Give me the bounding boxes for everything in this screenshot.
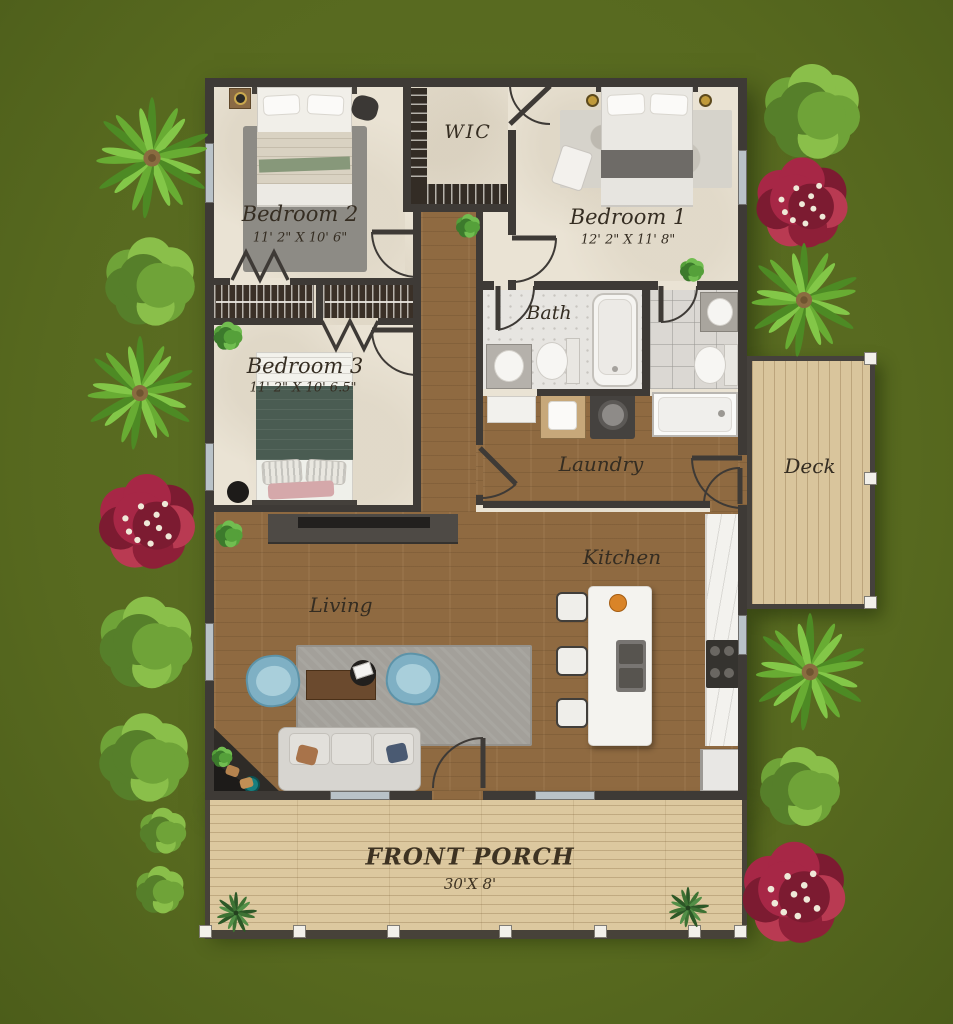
bedside-lamp bbox=[699, 94, 712, 107]
toilet-bowl bbox=[694, 346, 726, 384]
bush bbox=[94, 226, 206, 338]
closet-bedroom3 bbox=[323, 285, 420, 318]
wall bbox=[403, 78, 411, 212]
bath2-sink bbox=[707, 298, 733, 326]
sofa-cushion bbox=[331, 733, 372, 765]
burner bbox=[710, 646, 720, 656]
bed-pillow bbox=[307, 94, 345, 116]
toilet-tank bbox=[724, 344, 738, 386]
wall bbox=[534, 281, 658, 290]
wall bbox=[483, 791, 747, 800]
cooktop bbox=[706, 640, 739, 688]
door-gap-floor bbox=[432, 791, 483, 800]
porch-post bbox=[293, 925, 306, 938]
deck-label: Deck bbox=[784, 454, 835, 478]
bush bbox=[88, 702, 200, 814]
deck bbox=[747, 356, 875, 609]
wall bbox=[508, 280, 516, 290]
palm-tree bbox=[742, 238, 866, 362]
floor-plan-scene: Bedroom 2 11' 2" X 10' 6" Bedroom 1 12' … bbox=[0, 0, 953, 1024]
wall bbox=[205, 791, 432, 800]
wall bbox=[290, 278, 420, 285]
sink-basin bbox=[619, 644, 643, 664]
bed-pillow bbox=[263, 94, 301, 116]
bedroom1-bed-foot bbox=[601, 178, 693, 207]
burner bbox=[710, 668, 720, 678]
window bbox=[535, 791, 595, 800]
bathtub-basin bbox=[598, 299, 632, 375]
palm-tree bbox=[86, 92, 218, 224]
kitchen-counter bbox=[705, 514, 740, 746]
wic-label: WIC bbox=[444, 121, 492, 143]
window bbox=[330, 791, 390, 800]
wall bbox=[205, 505, 420, 512]
refrigerator bbox=[700, 749, 740, 791]
potted-plant bbox=[677, 255, 707, 285]
wall bbox=[476, 212, 483, 445]
island-sink bbox=[616, 640, 646, 692]
porch-post bbox=[199, 925, 212, 938]
window bbox=[205, 623, 214, 681]
bedroom1-dims: 12' 2" X 11' 8" bbox=[581, 233, 676, 248]
wall bbox=[508, 130, 516, 235]
laundry-label: Laundry bbox=[559, 452, 644, 476]
bedroom1-blanket-band bbox=[601, 150, 693, 178]
bush bbox=[130, 860, 190, 920]
potted-plant bbox=[453, 211, 483, 241]
potted-plant bbox=[209, 744, 235, 770]
wall bbox=[483, 501, 710, 508]
wall bbox=[537, 389, 642, 396]
porch-plant bbox=[212, 889, 260, 937]
bedroom1-label: Bedroom 1 bbox=[570, 205, 687, 229]
bar-stool bbox=[556, 592, 588, 622]
bedside-lamp bbox=[586, 94, 599, 107]
tv-screen bbox=[298, 517, 430, 528]
door-gap-floor bbox=[738, 455, 747, 505]
front-porch-dims: 30'X 8' bbox=[444, 875, 496, 893]
bar-stool bbox=[556, 646, 588, 676]
potted-plant bbox=[210, 318, 246, 354]
toilet-tank bbox=[566, 338, 580, 384]
porch-post bbox=[499, 925, 512, 938]
bath-sink bbox=[494, 350, 524, 382]
wic-shelving-bottom bbox=[427, 184, 507, 204]
bush bbox=[88, 585, 204, 701]
sofa bbox=[278, 727, 421, 791]
bar-stool bbox=[556, 698, 588, 728]
bedroom3-dims: 11' 2" X 10' 6.5" bbox=[250, 381, 357, 396]
sink-basin bbox=[619, 668, 643, 688]
tub-drain bbox=[612, 366, 618, 372]
wall bbox=[642, 290, 650, 396]
bush bbox=[750, 737, 850, 837]
flower-bush bbox=[87, 462, 207, 582]
utility-sink bbox=[548, 401, 577, 430]
bed-pillow bbox=[649, 93, 688, 116]
bedroom3-blanket bbox=[256, 386, 353, 460]
wall bbox=[483, 281, 494, 290]
toilet-bowl bbox=[536, 342, 568, 380]
burner bbox=[724, 668, 734, 678]
flower-bush bbox=[730, 829, 858, 957]
laundry-counter bbox=[487, 396, 536, 423]
wall bbox=[476, 495, 483, 505]
door-gap-floor bbox=[476, 445, 483, 495]
bath-label: Bath bbox=[526, 302, 571, 324]
wall bbox=[413, 204, 421, 512]
shower-drain bbox=[718, 410, 725, 417]
hallway-floor bbox=[421, 212, 476, 512]
wall bbox=[205, 78, 747, 87]
side-table bbox=[227, 481, 249, 503]
washer-drum bbox=[598, 400, 628, 430]
bedroom2-label: Bedroom 2 bbox=[242, 202, 359, 226]
wall bbox=[378, 318, 420, 325]
front-porch-label: FRONT PORCH bbox=[365, 844, 574, 871]
kitchen-label: Kitchen bbox=[583, 545, 661, 569]
bedroom3-label: Bedroom 3 bbox=[247, 354, 364, 378]
living-label: Living bbox=[309, 593, 372, 617]
deck-post bbox=[864, 472, 877, 485]
palm-tree bbox=[78, 331, 202, 455]
door-gap-floor bbox=[710, 501, 738, 512]
bedroom2-dims: 11' 2" X 10' 6" bbox=[253, 231, 348, 246]
closet-bedroom2 bbox=[214, 285, 314, 318]
porch-post bbox=[387, 925, 400, 938]
potted-plant bbox=[212, 517, 246, 551]
porch-post bbox=[594, 925, 607, 938]
bedside-lamp bbox=[234, 92, 247, 105]
fruit-bowl bbox=[609, 594, 627, 612]
wall bbox=[205, 278, 230, 285]
bush bbox=[134, 802, 192, 860]
porch-rail-side bbox=[205, 800, 210, 932]
bed-pillow bbox=[606, 93, 645, 116]
porch-plant bbox=[664, 884, 712, 932]
burner bbox=[724, 646, 734, 656]
palm-tree bbox=[746, 608, 874, 736]
